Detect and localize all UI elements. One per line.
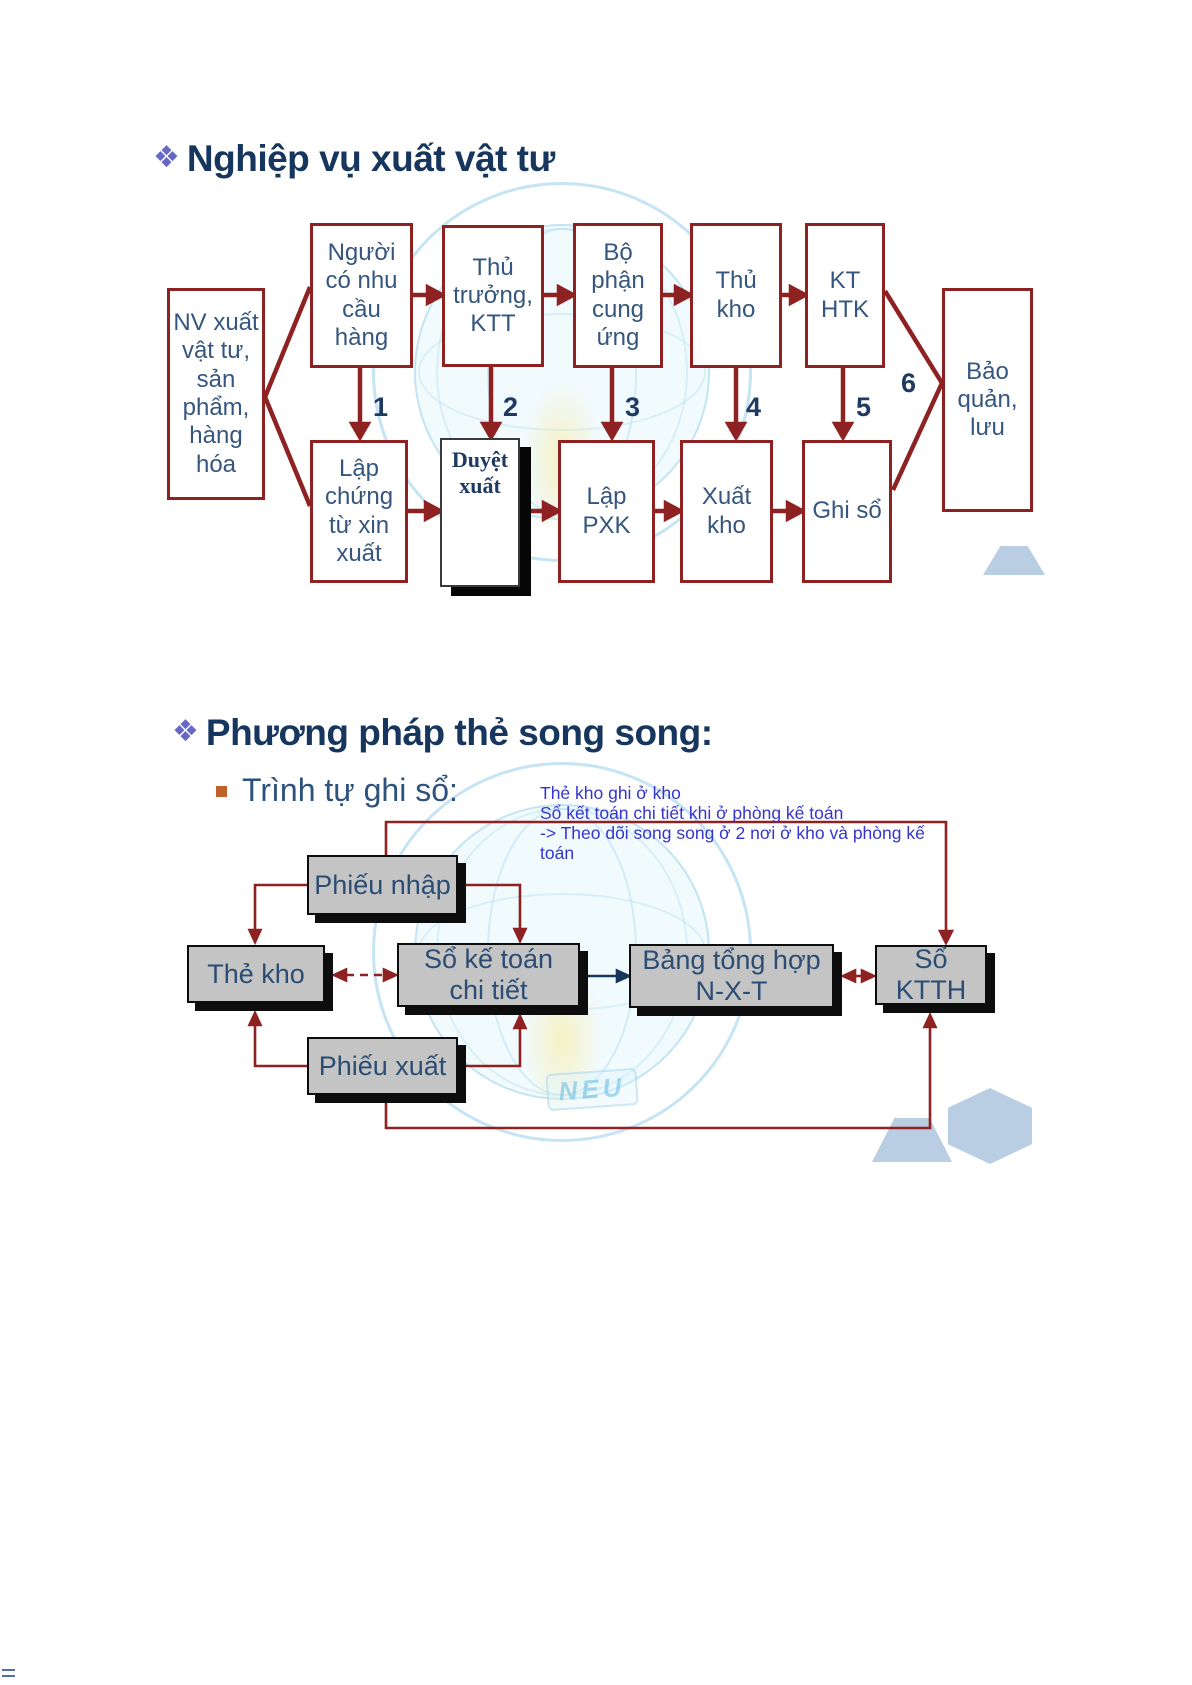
slide2-title: Phương pháp thẻ song song: [206,712,713,754]
sub-bullet-label: Trình tự ghi sổ: [242,772,458,809]
node-so-ktth: Sổ KTTH [875,945,987,1005]
sub-bullet-row: Trình tự ghi sổ: [216,772,458,809]
note-line: Thẻ kho ghi ở kho [540,783,925,803]
note-line: -> Theo dõi song song ở 2 nơi ở kho và p… [540,823,925,843]
diamond-bullet-icon: ❖ [153,138,180,177]
step-number-5: 5 [856,392,871,423]
square-bullet-icon [216,786,227,797]
page-corner-mark [2,1669,15,1677]
diamond-bullet-icon: ❖ [172,712,199,751]
node-phieu-xuat: Phiếu xuất [307,1037,458,1095]
annotation-notes: Thẻ kho ghi ở kho Sổ kết toán chi tiết k… [540,783,925,863]
note-line: toán [540,843,925,863]
node-lap-chung-tu-xin-xuat: Lập chứng từ xin xuất [310,440,408,583]
step-number-6: 6 [901,368,916,399]
node-nguoi-co-nhu-cau-hang: Người có nhu cầu hàng [310,223,413,368]
slide1-title-row: ❖ Nghiệp vụ xuất vật tư [153,138,555,180]
step-number-1: 1 [373,392,388,423]
node-nv-xuat-vat-tu: NV xuất vật tư, sản phẩm, hàng hóa [167,288,265,500]
slide-page: ❖ Nghiệp vụ xuất vật tư [0,0,1192,1685]
step-number-3: 3 [625,392,640,423]
node-bao-quan-luu: Bảo quản, lưu [942,288,1033,512]
step-number-4: 4 [746,392,761,423]
node-kt-htk: KT HTK [805,223,885,368]
node-bang-tong-hop-nxt: Bảng tổng hợp N-X-T [629,944,834,1008]
slide2-title-row: ❖ Phương pháp thẻ song song: [172,712,713,754]
slide2-blue-arrow [588,971,629,982]
node-duyet-xuat: Duyệt xuất [440,438,520,587]
note-line: Sổ kết toán chi tiết khi ở phòng kế toán [540,803,925,823]
node-thu-kho: Thủ kho [690,223,782,368]
node-thu-truong-ktt: Thủ trưởng, KTT [442,225,544,367]
node-so-ke-toan-chi-tiet: Sổ kế toán chi tiết [397,943,580,1007]
node-ghi-so: Ghi sổ [802,440,892,583]
step-number-2: 2 [503,392,518,423]
node-lap-pxk: Lập PXK [558,440,655,583]
node-the-kho: Thẻ kho [187,945,325,1003]
slide1-title: Nghiệp vụ xuất vật tư [187,138,555,180]
node-phieu-nhap: Phiếu nhập [307,855,458,915]
node-xuat-kho: Xuất kho [680,440,773,583]
node-bo-phan-cung-ung: Bộ phận cung ứng [573,223,663,368]
